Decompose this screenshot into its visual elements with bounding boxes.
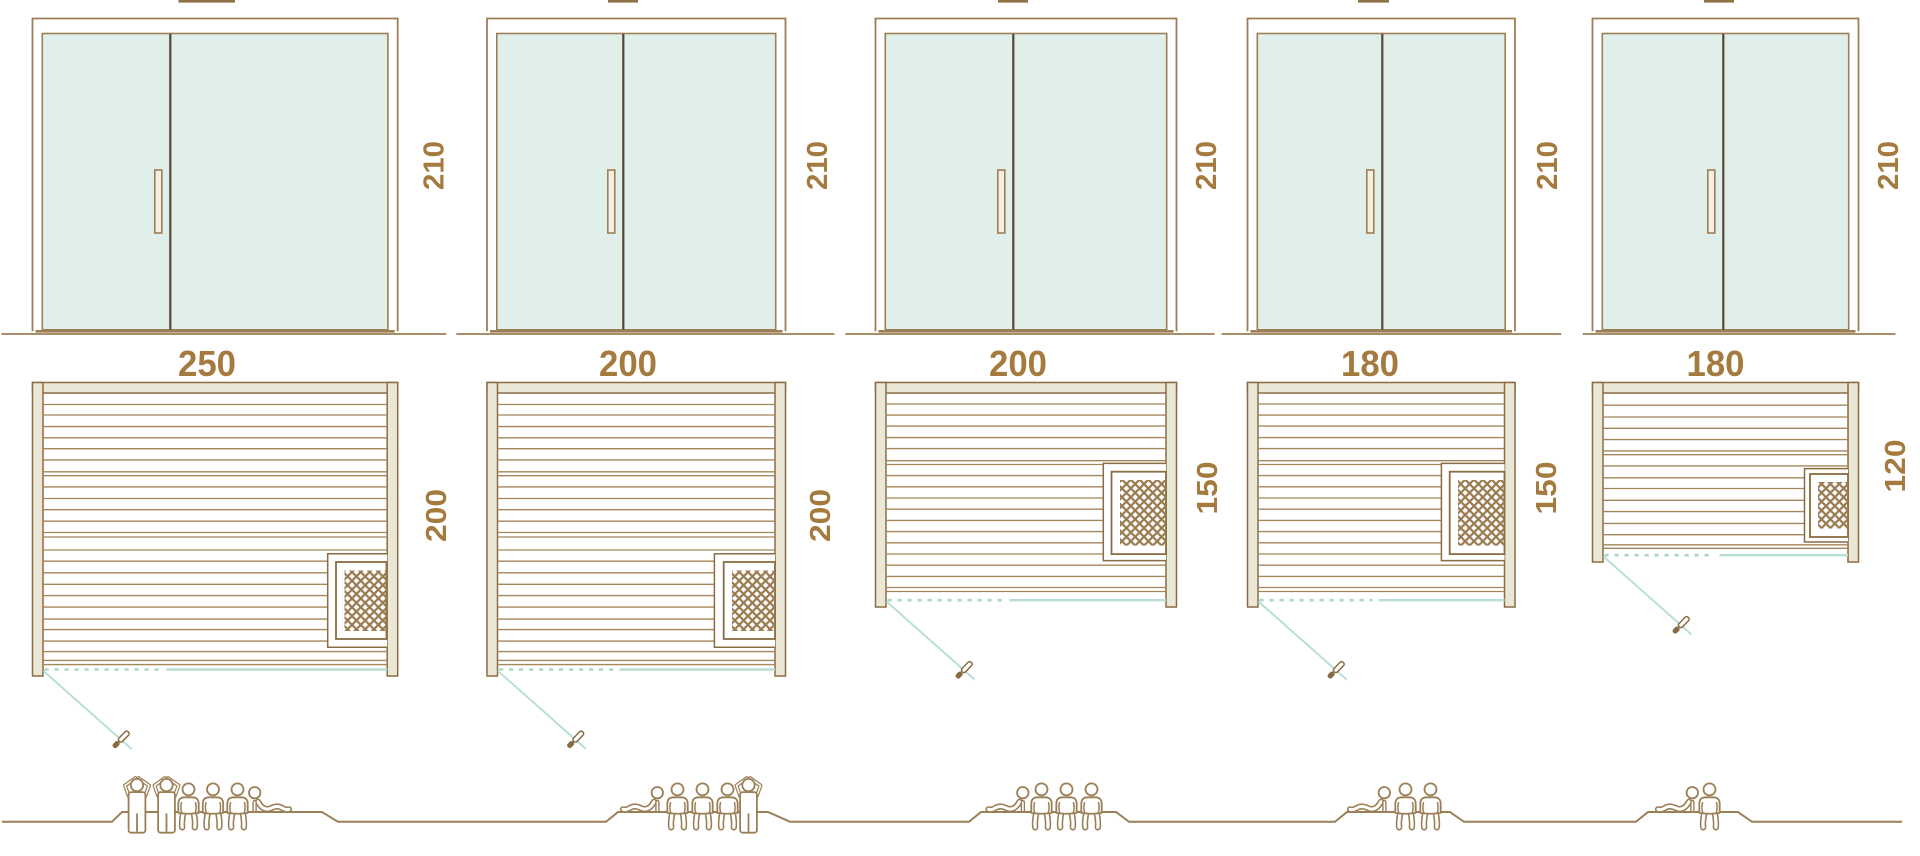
svg-text:200: 200 [989,343,1047,384]
svg-text:250: 250 [178,343,236,384]
svg-text:210: 210 [1873,141,1905,190]
svg-text:180: 180 [1341,343,1399,384]
svg-text:180: 180 [1687,343,1745,384]
svg-text:210: 210 [802,141,834,190]
svg-text:200: 200 [421,489,453,542]
svg-text:210: 210 [1191,141,1223,190]
svg-text:200: 200 [599,343,657,384]
svg-text:150: 150 [1192,462,1224,515]
svg-text:210: 210 [1532,141,1564,190]
svg-text:210: 210 [419,141,451,190]
svg-text:150: 150 [1531,462,1563,515]
svg-text:120: 120 [1880,440,1912,493]
svg-text:200: 200 [805,489,837,542]
